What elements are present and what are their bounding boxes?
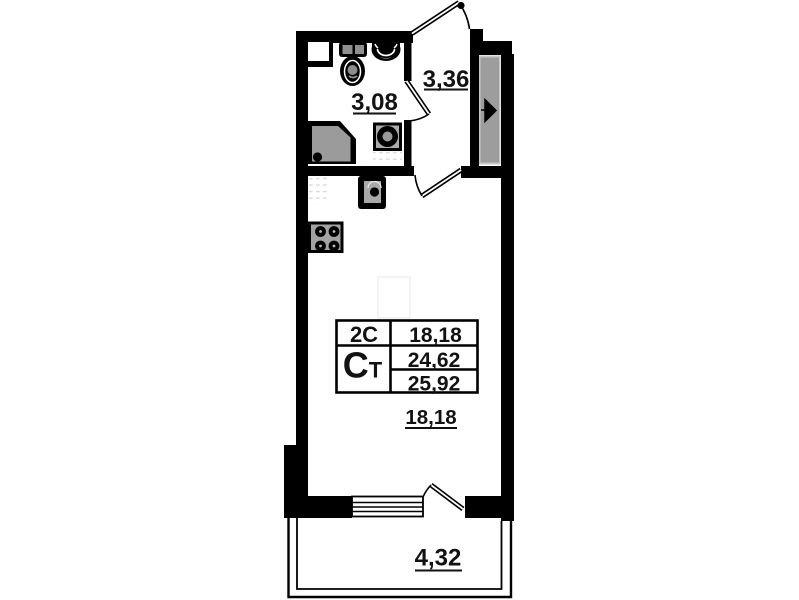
svg-text:25,92: 25,92 (408, 373, 461, 396)
svg-text:3,08: 3,08 (351, 89, 398, 116)
svg-text:2С: 2С (350, 322, 378, 347)
svg-text:4,32: 4,32 (415, 545, 462, 572)
svg-text:24,62: 24,62 (408, 349, 461, 372)
svg-text:18,18: 18,18 (405, 406, 456, 429)
svg-text:18,18: 18,18 (409, 324, 462, 347)
